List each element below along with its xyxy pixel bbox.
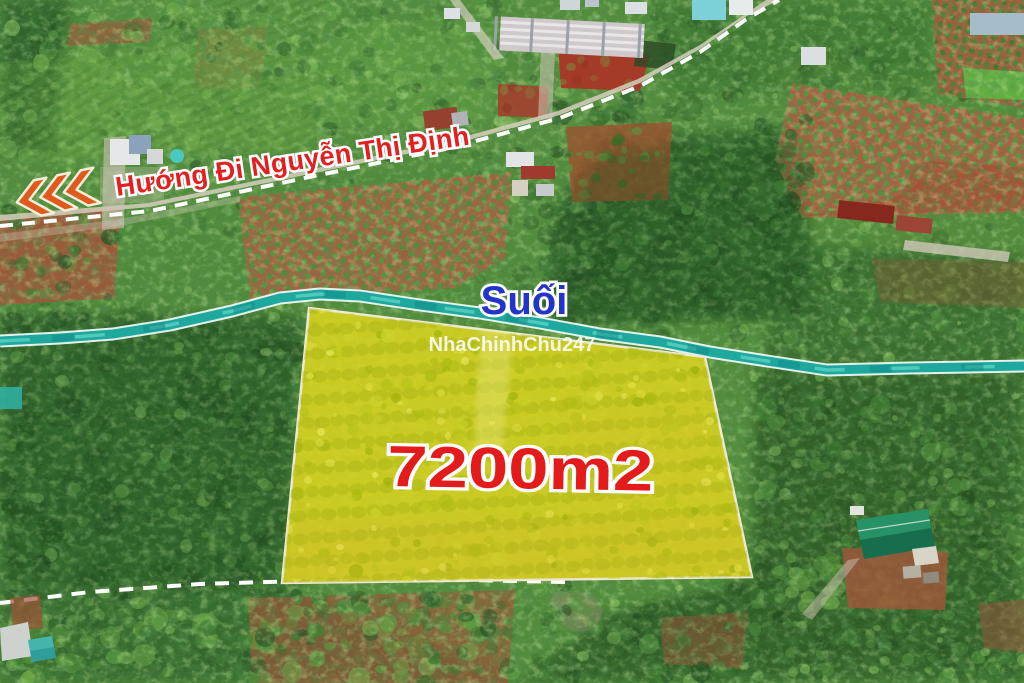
svg-text:7200m2: 7200m2 — [387, 434, 654, 504]
svg-text:NhaChinhChu247: NhaChinhChu247 — [429, 334, 596, 356]
svg-text:Suối: Suối — [481, 279, 568, 323]
